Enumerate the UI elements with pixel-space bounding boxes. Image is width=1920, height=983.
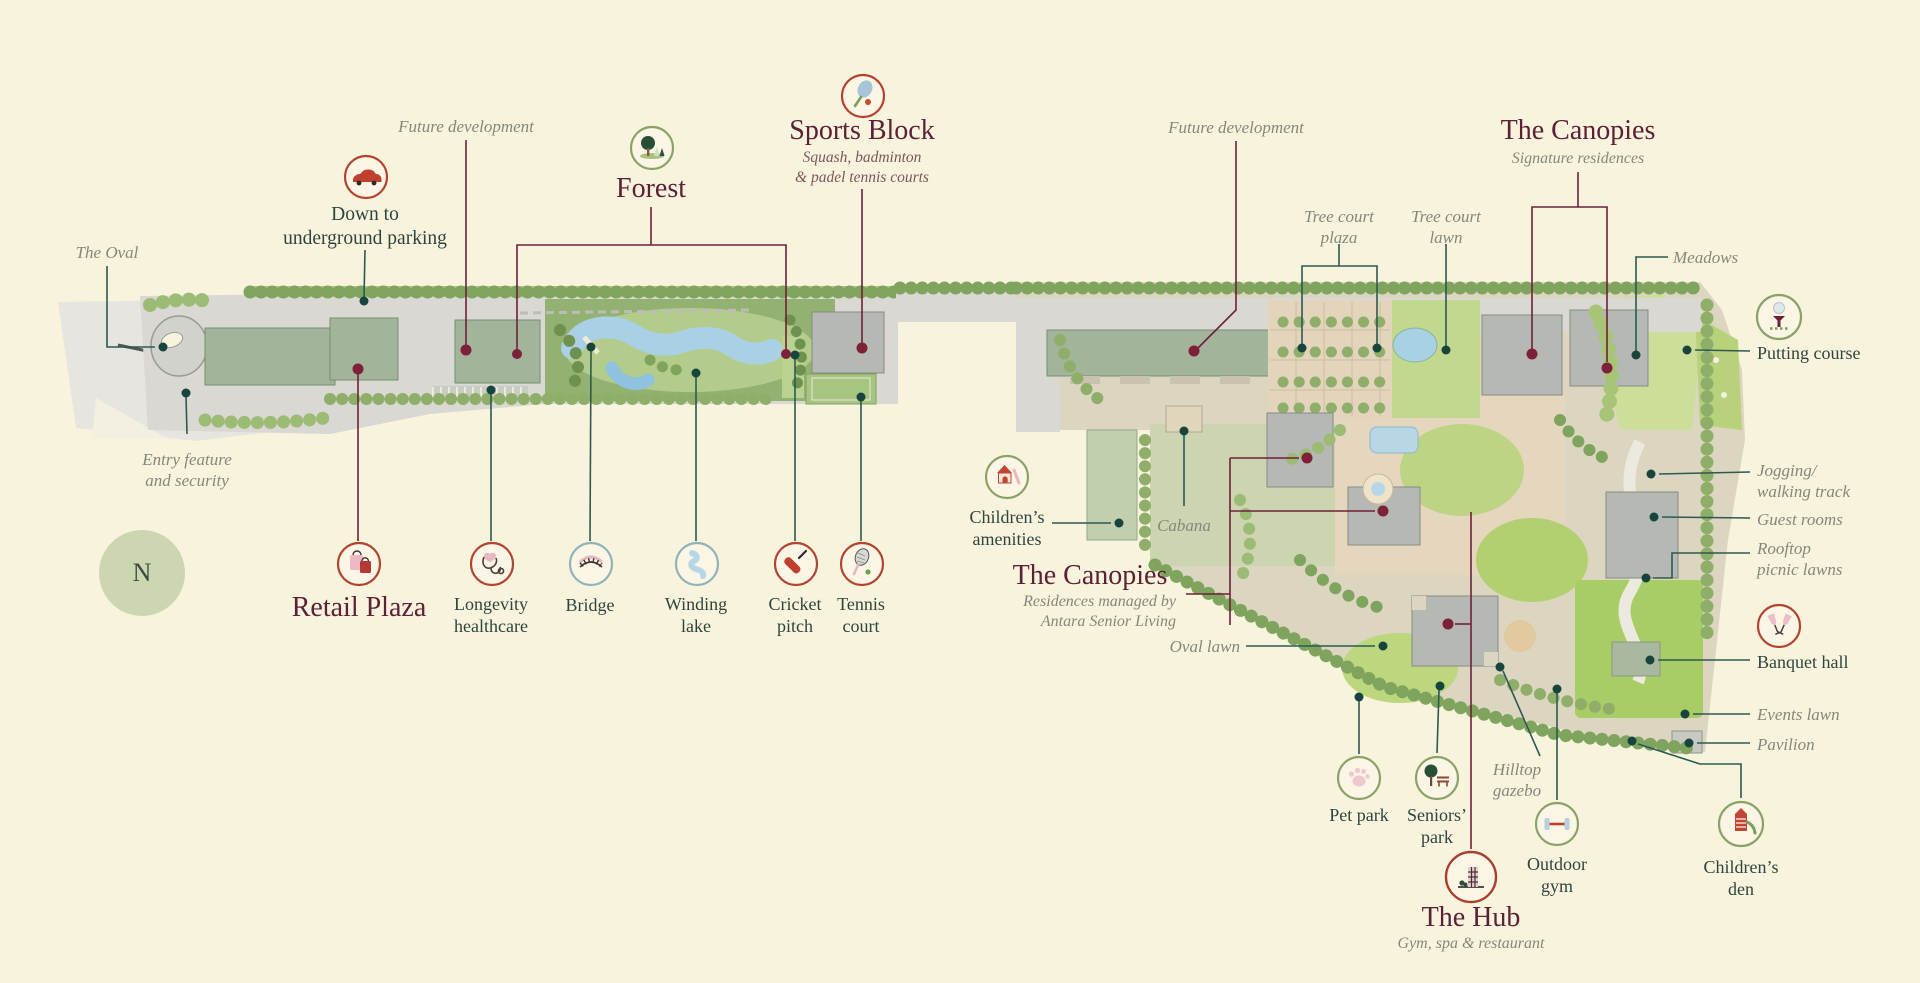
map-banquet-hall-building: [1612, 642, 1660, 676]
label-longevity-healthcare: Longevityhealthcare: [454, 593, 528, 638]
site-plan-page: N The Oval Future development Down tound…: [0, 0, 1920, 983]
callout-parking: [360, 250, 369, 306]
label-childrens-den: Children’sden: [1704, 856, 1779, 901]
callout-seniors-park: [1436, 682, 1445, 754]
label-events-lawn: Events lawn: [1757, 704, 1840, 725]
callout-retail: [353, 364, 364, 542]
map-tree-court-plaza: [1268, 300, 1392, 418]
callout-pet-park: [1355, 693, 1364, 755]
map-canopies-tower-3: [1267, 413, 1333, 487]
callout-oval-lawn: [1246, 642, 1388, 651]
callout-winding-lake: [692, 369, 701, 542]
callout-guest-rooms: [1650, 513, 1751, 522]
label-guest-rooms: Guest rooms: [1757, 509, 1843, 530]
map-building: [205, 328, 335, 385]
label-pet-park: Pet park: [1329, 804, 1388, 826]
label-sports-block-sub: Squash, badminton& padel tennis courts: [795, 148, 929, 188]
label-oval-lawn: Oval lawn: [1170, 636, 1240, 657]
map-hub-building: [1412, 596, 1498, 666]
label-hilltop-gazebo: Hilltopgazebo: [1493, 759, 1541, 801]
callout-future-dev-left: [461, 140, 472, 356]
map-cricket-pitch: [782, 336, 804, 398]
label-forest: Forest: [616, 172, 686, 207]
callout-banquet: [1646, 656, 1751, 665]
map-bridge: [584, 337, 598, 353]
map-meadows: [1590, 294, 1702, 430]
label-childrens-amenities: Children’samenities: [970, 506, 1045, 551]
label-canopies-signature: The Canopies: [1501, 114, 1656, 149]
playhouse-icon: [984, 454, 1030, 500]
label-tennis-court: Tenniscourt: [837, 593, 885, 638]
callout-pavilion: [1685, 739, 1751, 748]
label-seniors-park: Seniors’park: [1407, 804, 1467, 849]
label-the-hub-sub: Gym, spa & restaurant: [1398, 934, 1545, 954]
label-tree-court-lawn: Tree courtlawn: [1411, 206, 1481, 248]
tree-bench-icon: [1414, 755, 1460, 801]
callout-events-lawn: [1681, 710, 1751, 719]
label-the-hub: The Hub: [1422, 901, 1521, 936]
map-guest-rooms-building: [1606, 492, 1678, 578]
bridge-icon: [568, 541, 614, 587]
map-main-road: [140, 287, 898, 434]
callout-meadows: [1632, 257, 1669, 360]
north-compass: N: [99, 530, 185, 616]
label-meadows: Meadows: [1673, 247, 1738, 268]
map-cabana-strip: [1087, 430, 1137, 540]
callout-outdoor-gym: [1553, 685, 1562, 801]
map-play-area: [1504, 620, 1536, 652]
label-jogging-track: Jogging/walking track: [1757, 460, 1850, 502]
label-canopies-signature-sub: Signature residences: [1512, 149, 1645, 169]
map-retail-building: [330, 318, 398, 380]
map-oval-roundabout: [151, 316, 207, 376]
callout-childrens-den: [1628, 737, 1742, 799]
map-tennis-court: [806, 374, 876, 404]
map-entry-area: [58, 298, 338, 441]
car-icon: [343, 154, 389, 200]
champagne-glasses-icon: [1756, 603, 1802, 649]
label-bridge: Bridge: [566, 594, 615, 616]
label-canopies-managed-sub: Residences managed byAntara Senior Livin…: [1023, 592, 1176, 632]
callout-forest: [512, 207, 791, 359]
map-winding-lake: [572, 327, 772, 353]
building-icon: [1444, 850, 1498, 904]
label-banquet-hall: Banquet hall: [1757, 651, 1848, 673]
label-pavilion: Pavilion: [1757, 734, 1815, 755]
label-putting-course: Putting course: [1757, 342, 1861, 364]
compass-label: N: [133, 558, 152, 588]
map-oval-lawn: [1342, 633, 1458, 703]
callout-cabana: [1180, 427, 1189, 507]
callout-tree-court-plaza: [1298, 244, 1382, 353]
map-pavilion: [1672, 731, 1702, 753]
map-sports-block-building: [812, 312, 884, 373]
callout-putting: [1683, 346, 1751, 355]
label-canopies-managed: The Canopies: [1013, 559, 1168, 594]
label-the-oval: The Oval: [76, 242, 139, 263]
map-events-lawn: [1575, 580, 1703, 718]
map-right-block: [1016, 282, 1745, 753]
callout-tree-court-lawn: [1442, 244, 1451, 355]
callout-childrens-amenities: [1052, 519, 1124, 528]
callout-hilltop: [1496, 663, 1541, 757]
label-underground-parking: Down tounderground parking: [283, 203, 447, 251]
racket-ball-icon: [839, 541, 885, 587]
callout-future-dev-right: [1189, 141, 1237, 357]
label-outdoor-gym: Outdoorgym: [1527, 853, 1587, 898]
callout-entry: [182, 389, 191, 435]
label-cricket-pitch: Cricketpitch: [769, 593, 822, 638]
label-tree-court-plaza: Tree courtplaza: [1304, 206, 1374, 248]
dumbbell-icon: [1534, 801, 1580, 847]
stethoscope-heart-icon: [469, 541, 515, 587]
label-rooftop-picnic: Rooftoppicnic lawns: [1757, 538, 1842, 580]
map-future-dev-building: [455, 320, 540, 383]
tree-icon: [629, 125, 675, 171]
label-future-development-right: Future development: [1168, 117, 1304, 138]
callout-canopies-signature: [1527, 172, 1613, 374]
map-jogging-track: [1624, 442, 1640, 682]
callout-rooftop: [1642, 553, 1751, 583]
label-retail-plaza: Retail Plaza: [292, 591, 427, 626]
callout-jogging: [1647, 470, 1751, 479]
golf-tee-icon: [1755, 293, 1803, 341]
callout-tennis: [857, 393, 866, 542]
map-putting-course: [1695, 315, 1742, 430]
label-winding-lake: Windinglake: [665, 593, 727, 638]
paw-icon: [1336, 755, 1382, 801]
map-canopies-tower-2: [1570, 310, 1648, 386]
label-cabana: Cabana: [1157, 515, 1211, 536]
callout-longevity: [487, 386, 496, 542]
shopping-bags-icon: [336, 541, 382, 587]
map-forest-area: [545, 299, 835, 401]
cricket-bat-icon: [773, 541, 819, 587]
callout-bridge: [587, 343, 596, 542]
map-canopies-tower-4: [1348, 487, 1420, 545]
map-entry-gate: [118, 345, 152, 352]
label-sports-block: Sports Block: [789, 114, 934, 149]
river-icon: [674, 541, 720, 587]
tennis-racket-icon: [840, 73, 886, 119]
map-left-strip: [58, 286, 898, 441]
map-cabana: [1166, 406, 1202, 432]
map-tree-court-lawn: [1392, 300, 1480, 418]
map-long-building: [1047, 330, 1330, 376]
callout-the-oval: [107, 266, 168, 352]
callout-cricket: [791, 351, 800, 542]
map-pool: [1370, 427, 1418, 453]
play-tower-icon: [1717, 800, 1765, 848]
callout-sports-block: [857, 189, 868, 354]
map-pond: [1393, 328, 1437, 362]
map-canopies-tower-1: [1482, 315, 1562, 395]
label-future-development-left: Future development: [398, 116, 534, 137]
label-entry-feature: Entry featureand security: [142, 449, 232, 491]
callout-canopies-managed: [1186, 453, 1389, 626]
